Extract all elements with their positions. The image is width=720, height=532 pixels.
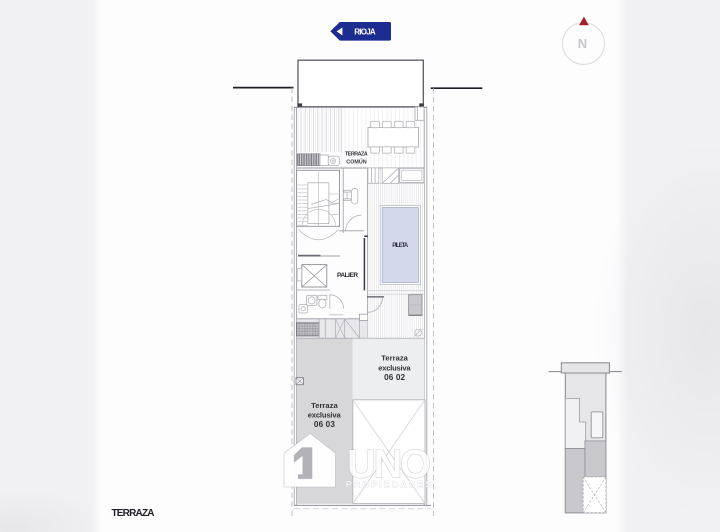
svg-text:N: N — [578, 36, 587, 51]
svg-text:PALIER: PALIER — [337, 272, 359, 279]
svg-text:06 03: 06 03 — [314, 420, 335, 429]
svg-text:PILETA: PILETA — [392, 243, 409, 249]
svg-text:PROPIEDADES: PROPIEDADES — [346, 480, 432, 490]
svg-text:06 02: 06 02 — [384, 373, 405, 382]
svg-text:TERRAZA: TERRAZA — [112, 508, 156, 519]
svg-text:Terraza: Terraza — [311, 401, 338, 410]
svg-text:TERRAZA: TERRAZA — [345, 152, 368, 158]
svg-text:exclusiva: exclusiva — [378, 363, 411, 372]
svg-text:COMÚN: COMÚN — [346, 159, 367, 166]
svg-text:exclusiva: exclusiva — [308, 411, 342, 420]
svg-text:Terraza: Terraza — [381, 353, 408, 362]
svg-text:RIOJA: RIOJA — [354, 27, 376, 36]
